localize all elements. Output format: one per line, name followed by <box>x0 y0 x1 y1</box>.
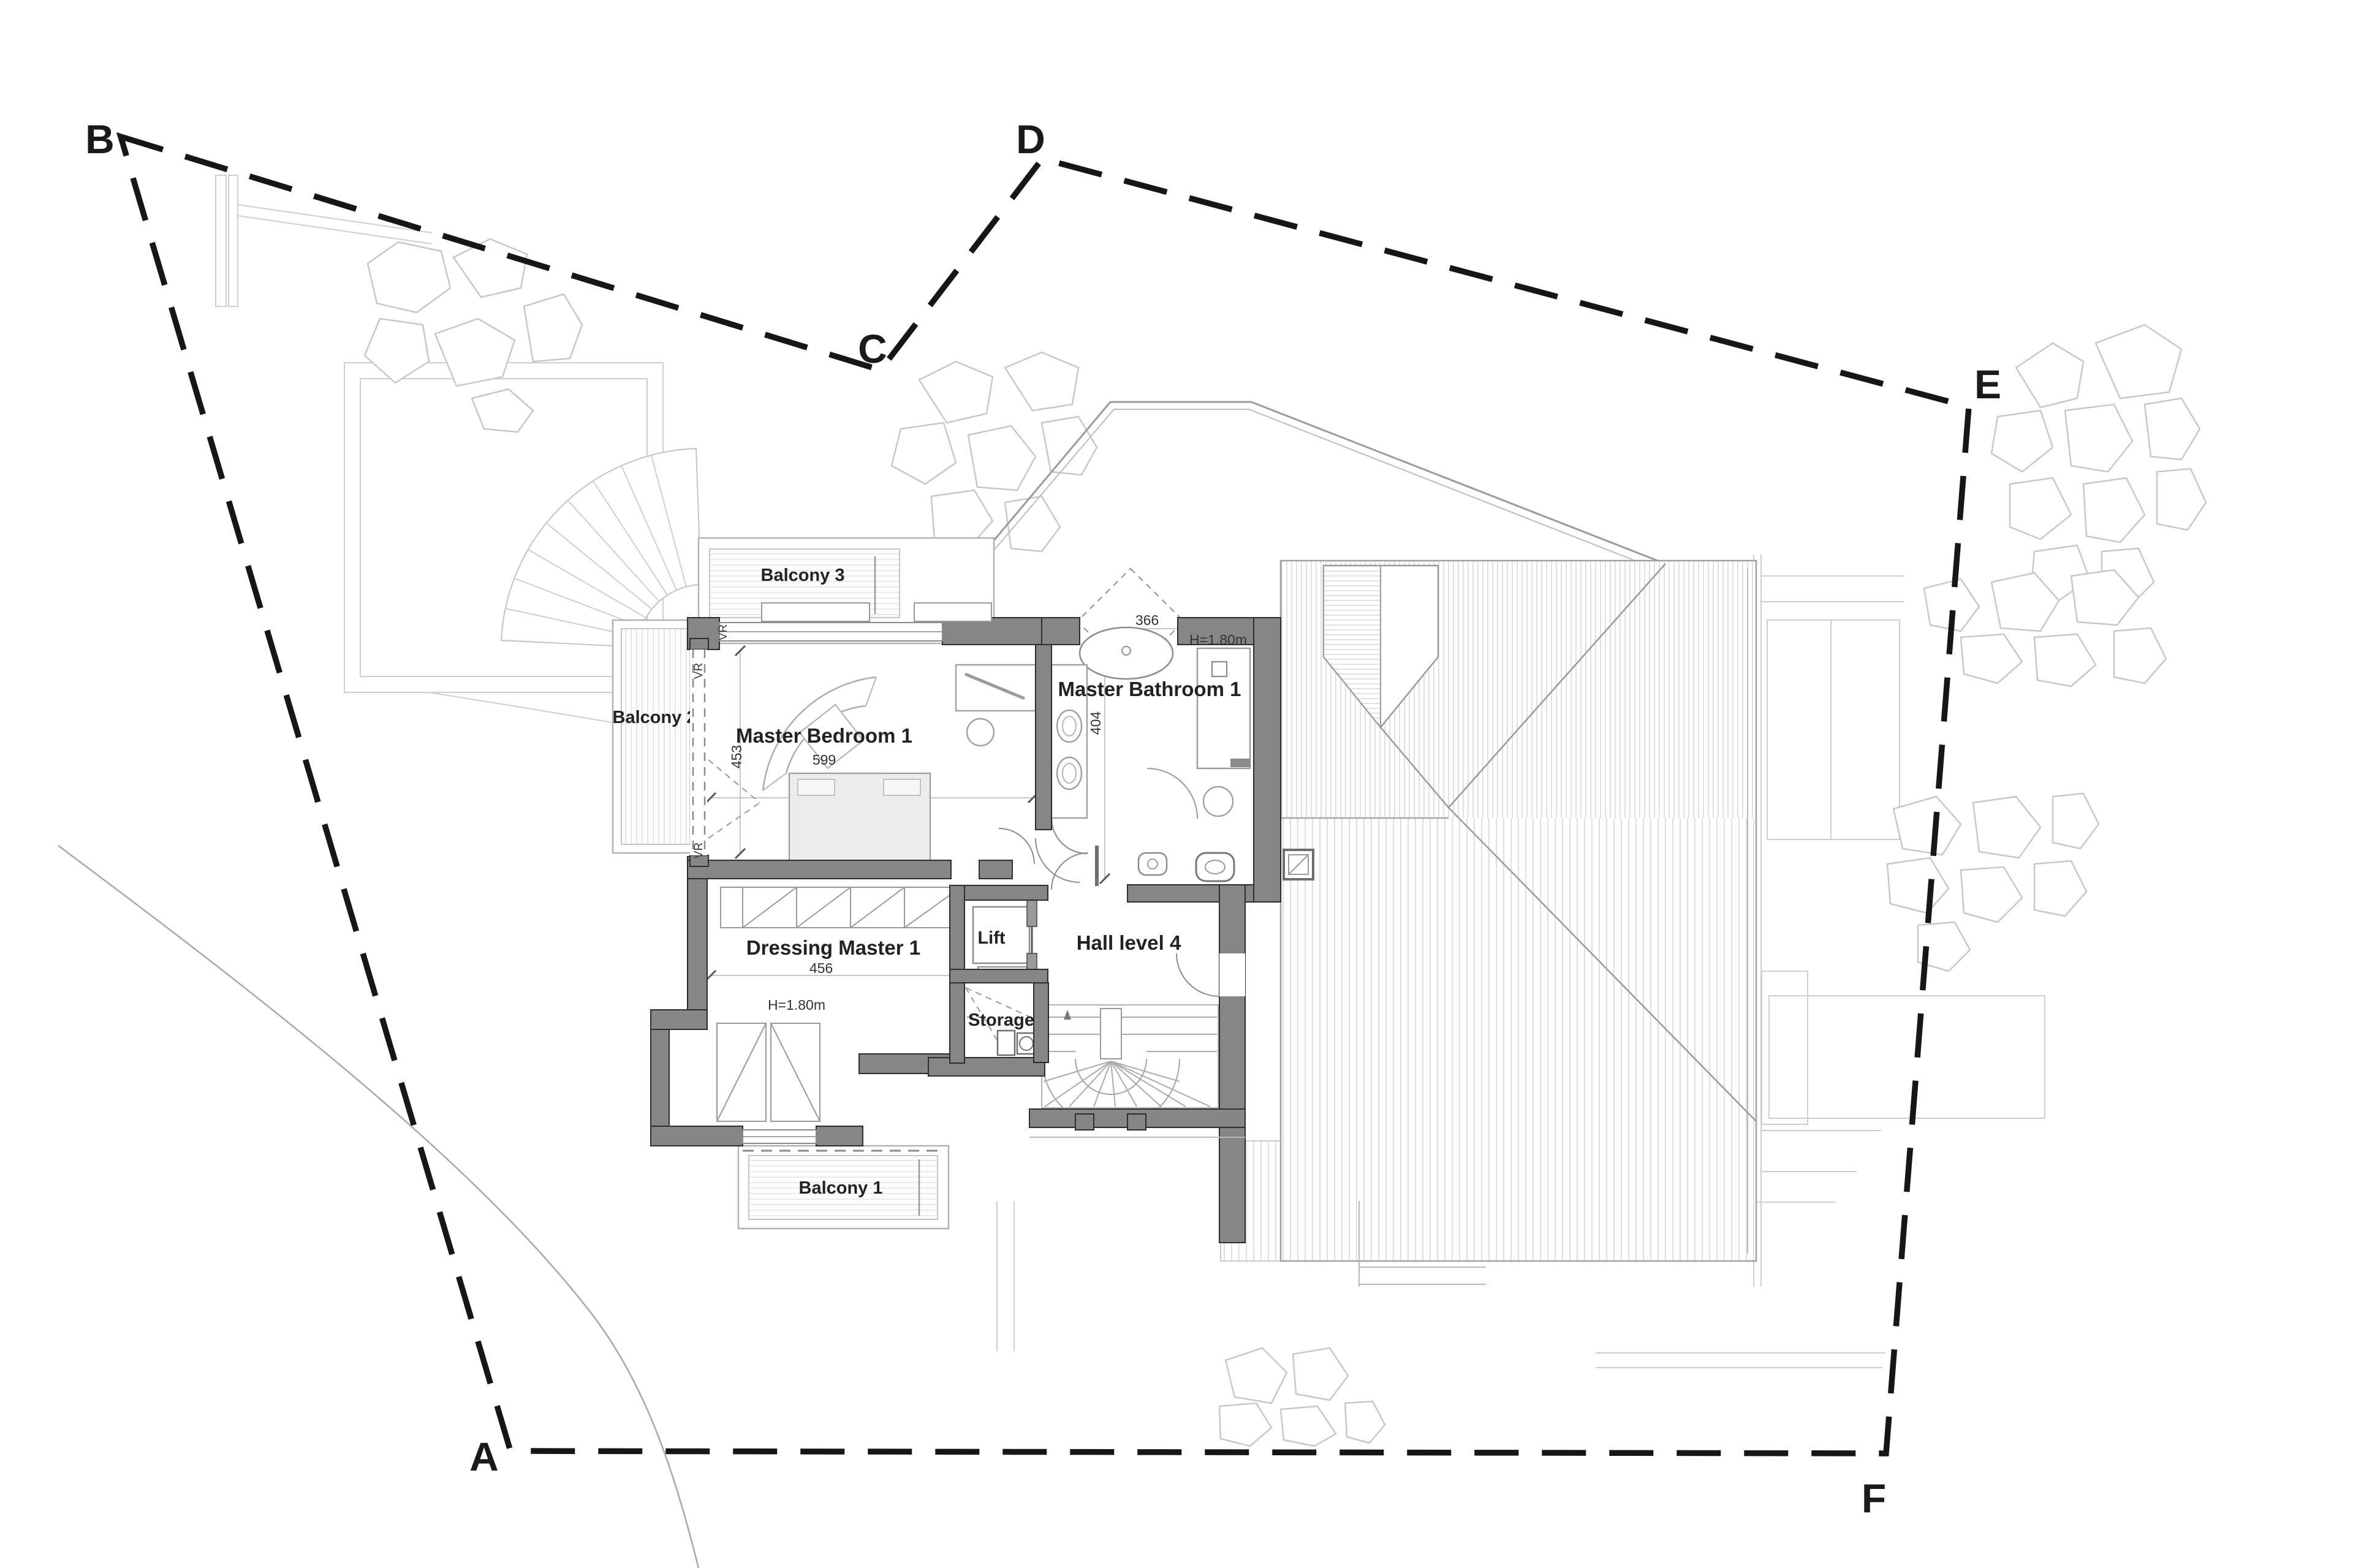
wall-bed-bath-divider <box>1036 645 1051 830</box>
master-bedroom-furniture <box>763 665 1036 864</box>
window-box <box>762 603 870 621</box>
lift-door-jamb <box>1027 900 1037 926</box>
door-swing <box>1036 838 1080 882</box>
storage-unit <box>998 1031 1015 1055</box>
bathtub <box>1080 627 1173 679</box>
shower-closet <box>1197 648 1250 768</box>
stool <box>967 719 994 746</box>
bathroom-height-note: H=1.80m <box>1189 632 1247 648</box>
dressing-height-note: H=1.80m <box>768 997 825 1013</box>
stair-well <box>1042 1005 1218 1108</box>
planter-strip <box>216 175 226 306</box>
pillow <box>798 779 835 795</box>
boundary-marker-c: C <box>858 326 887 371</box>
shutter-marker: VR <box>717 624 730 640</box>
balcony-door-dim: 453 <box>729 745 745 768</box>
sink <box>1057 710 1082 742</box>
boundary-marker-d: D <box>1016 116 1045 162</box>
rock-cluster-east-mid <box>1924 570 2166 686</box>
master-bedroom-label: Master Bedroom 1 <box>736 724 912 747</box>
door-swing <box>1147 768 1197 819</box>
hall-label: Hall level 4 <box>1077 931 1181 954</box>
dressing-dim: 456 <box>809 960 833 976</box>
pillow <box>884 779 920 795</box>
sink <box>1057 757 1082 789</box>
master-bathroom-label: Master Bathroom 1 <box>1058 678 1241 700</box>
wall-bed-dressing-divider <box>688 860 951 879</box>
door-swing <box>1051 853 1088 890</box>
boundary-marker-b: B <box>85 116 115 162</box>
storage-label: Storage <box>968 1010 1034 1030</box>
house-outline <box>994 402 1665 571</box>
boundary-marker-e: E <box>1974 362 2001 407</box>
bidet <box>1139 853 1167 875</box>
terrace-pool-outline <box>1767 620 1900 839</box>
door-swing <box>999 828 1034 864</box>
roof-skylight <box>1284 850 1313 879</box>
vanity-curve <box>1051 818 1087 854</box>
boundary-marker-a: A <box>469 1434 499 1479</box>
door-swing <box>1176 953 1219 996</box>
rock-cluster-east-lower <box>1887 793 2099 971</box>
shutter-marker: VR <box>692 663 705 679</box>
curved-stair-fan <box>501 449 701 647</box>
boundary-marker-f: F <box>1862 1475 1886 1521</box>
balcony-2: Balcony 2 <box>613 620 699 853</box>
roof-lower-plane <box>1281 818 1756 1261</box>
window-box <box>914 603 991 621</box>
toilet <box>1196 853 1234 881</box>
dressing-label: Dressing Master 1 <box>746 936 920 959</box>
balcony-1: Balcony 1 <box>738 1146 949 1229</box>
wall-east-hall <box>1219 885 1245 1243</box>
lift-label: Lift <box>977 928 1005 948</box>
wall-east-bathroom <box>1254 618 1281 902</box>
site-wall-line <box>238 216 432 244</box>
terrace-slab <box>1769 996 2045 1118</box>
master-bedroom-dim: 599 <box>813 752 836 768</box>
shutter-marker: VR <box>692 843 705 858</box>
bathroom-width-dim: 404 <box>1088 711 1104 735</box>
balcony2-label: Balcony 2 <box>613 708 697 727</box>
roof-plan <box>1221 561 1756 1287</box>
floor-plan-canvas: Balcony 3 Balcony 2 Balcony 1 <box>0 0 2353 1568</box>
site-wall-line <box>238 205 432 233</box>
floor-plan-sheet: Balcony 3 Balcony 2 Balcony 1 <box>0 0 2353 1568</box>
planter-strip <box>229 175 238 306</box>
towel-radiator <box>1230 759 1250 767</box>
rock-cluster-south <box>1219 1348 1385 1446</box>
rock-cluster-north <box>892 352 1097 551</box>
dressing-wardrobes <box>717 887 961 1121</box>
balcony1-label: Balcony 1 <box>799 1178 883 1198</box>
floor-drain <box>1203 787 1233 816</box>
rock-cluster-east-upper <box>1991 325 2206 607</box>
balcony3-label: Balcony 3 <box>761 566 845 585</box>
bathroom-door-dim: 366 <box>1135 612 1159 628</box>
hall-east-door-gap <box>1219 953 1245 996</box>
contour-line <box>58 846 699 1568</box>
stair-newel <box>1101 1009 1121 1059</box>
